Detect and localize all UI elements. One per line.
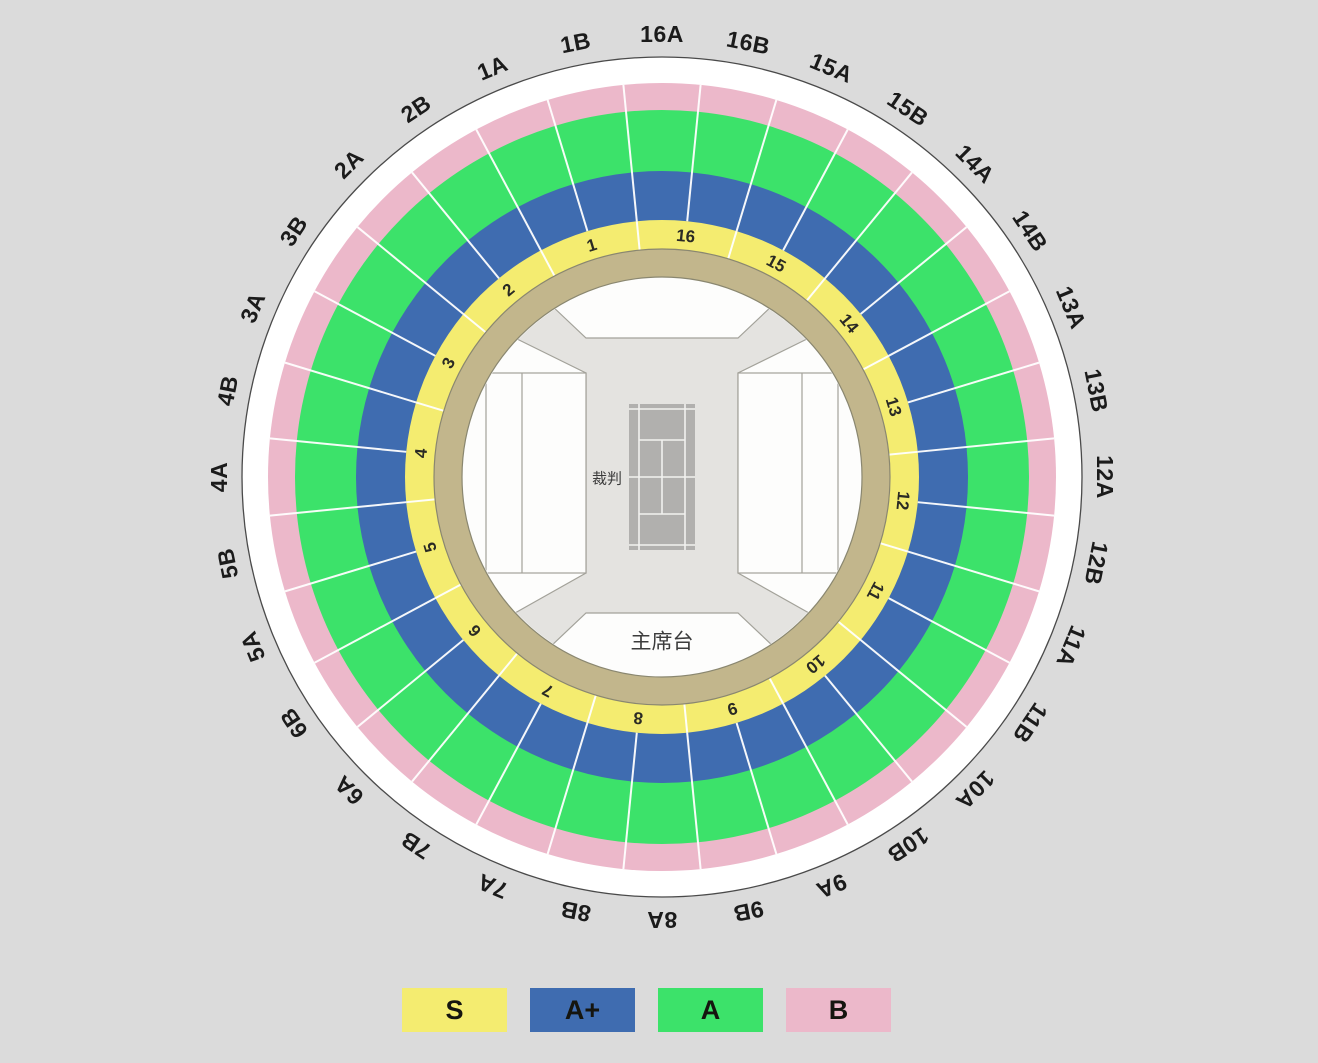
ring-number-12: 12 bbox=[892, 490, 913, 511]
section-label-13A: 13A bbox=[1051, 282, 1092, 332]
rostrum-label: 主席台 bbox=[631, 631, 694, 654]
section-label-7B: 7B bbox=[396, 826, 436, 865]
section-label-2A: 2A bbox=[329, 144, 369, 184]
section-label-11A: 11A bbox=[1051, 622, 1091, 671]
section-label-3B: 3B bbox=[274, 211, 313, 251]
seat-map-page: { "page": { "background": "#dbdbdb" }, "… bbox=[0, 0, 1318, 1058]
legend-item-S[interactable]: S bbox=[402, 988, 507, 1032]
section-label-16B: 16B bbox=[724, 25, 772, 59]
tennis-court bbox=[629, 404, 695, 550]
section-label-9B: 9B bbox=[731, 896, 766, 927]
section-label-6B: 6B bbox=[274, 703, 313, 743]
section-label-16A: 16A bbox=[640, 21, 684, 47]
section-label-12B: 12B bbox=[1079, 539, 1113, 587]
referee-label: 裁判 bbox=[592, 471, 622, 488]
section-label-9A: 9A bbox=[813, 868, 851, 904]
section-label-7A: 7A bbox=[473, 868, 511, 904]
section-label-1A: 1A bbox=[473, 50, 511, 86]
section-label-15A: 15A bbox=[806, 47, 856, 88]
legend-item-A[interactable]: A bbox=[658, 988, 763, 1032]
east-seating-block bbox=[738, 373, 838, 573]
tier-legend: SA+AB bbox=[402, 988, 891, 1032]
section-label-8B: 8B bbox=[558, 896, 593, 927]
ring-number-8: 8 bbox=[633, 708, 644, 728]
section-label-5A: 5A bbox=[235, 628, 271, 666]
section-label-4A: 4A bbox=[206, 462, 232, 492]
legend-item-B[interactable]: B bbox=[786, 988, 891, 1032]
section-label-8A: 8A bbox=[647, 907, 677, 933]
section-label-3A: 3A bbox=[235, 288, 271, 326]
section-label-12A: 12A bbox=[1092, 455, 1118, 499]
section-label-4B: 4B bbox=[212, 373, 243, 408]
stadium-seat-map: 裁判 主席台 12345678910111213141516 16A16B15A… bbox=[0, 0, 1318, 1058]
legend-item-A+[interactable]: A+ bbox=[530, 988, 635, 1032]
section-label-1B: 1B bbox=[558, 27, 593, 58]
section-label-13B: 13B bbox=[1079, 367, 1113, 415]
ring-number-16: 16 bbox=[675, 226, 696, 247]
section-label-6A: 6A bbox=[329, 770, 369, 810]
section-label-2B: 2B bbox=[396, 89, 436, 128]
west-seating-block bbox=[486, 373, 586, 573]
section-label-5B: 5B bbox=[212, 546, 243, 581]
